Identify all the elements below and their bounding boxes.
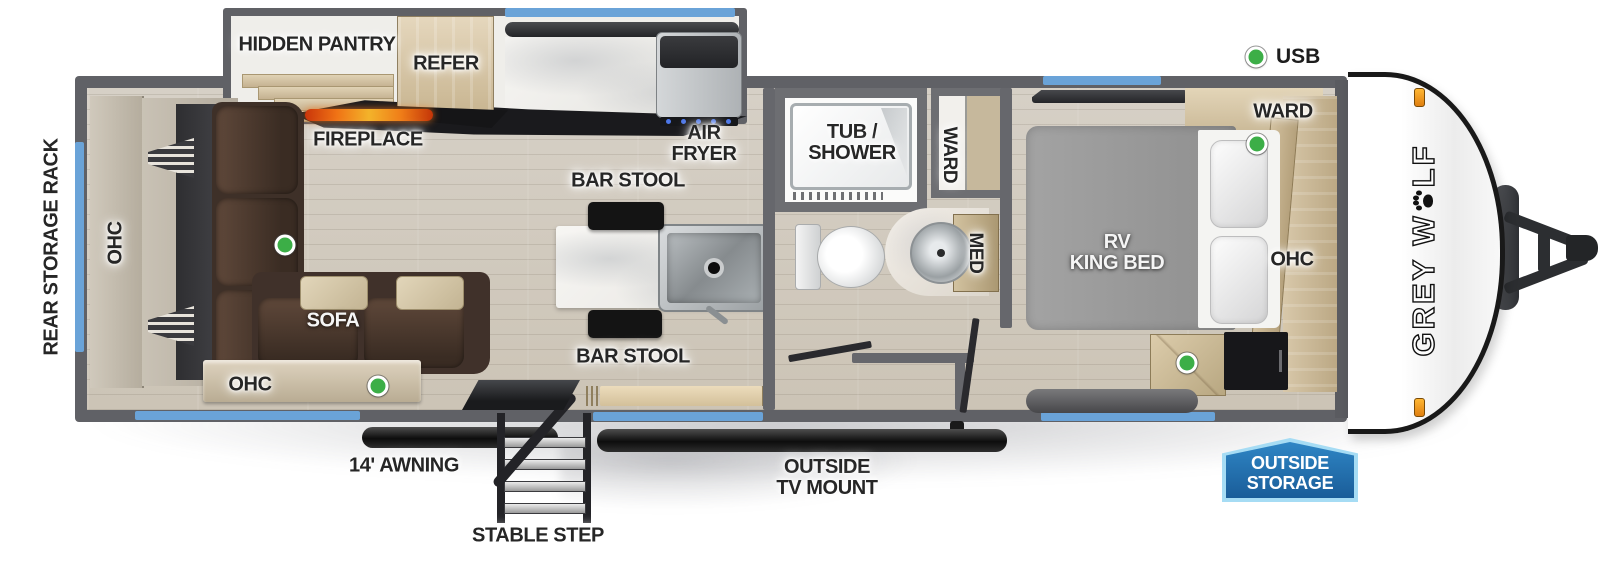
kitchen-sink <box>658 224 770 312</box>
bar-stool-top-label: BAR STOOL <box>571 171 685 192</box>
ohc-bottom-label: OHC <box>228 375 271 396</box>
refer-label: REFER <box>413 54 479 75</box>
air-fryer-label: AIRFRYER <box>671 123 736 165</box>
marker-light-bottom <box>1414 398 1425 417</box>
step-tread <box>504 437 586 448</box>
kitchen-bottom-window <box>593 412 763 421</box>
paw-icon <box>1413 190 1435 210</box>
bar-stool-bottom <box>588 310 662 338</box>
sofa-pillow <box>396 276 464 310</box>
brand-text-2: LF <box>1406 143 1442 187</box>
bath-ward-label: WARD <box>939 127 959 183</box>
awning-label: 14' AWNING <box>349 456 459 477</box>
bedroom-top-window <box>1043 76 1161 85</box>
usb-dot-nightstand <box>1177 353 1198 374</box>
bathroom-sink <box>910 222 972 284</box>
brand-text-1: GREY W <box>1406 213 1442 356</box>
bar-stool-bottom-label: BAR STOOL <box>576 347 690 368</box>
usb-legend-dot <box>1246 47 1267 68</box>
bathroom-right-wall <box>1000 88 1012 328</box>
slideout-window <box>505 8 735 17</box>
step-tread <box>504 481 586 492</box>
usb-dot-ward <box>1247 134 1268 155</box>
entry-step <box>462 380 580 410</box>
marker-light-top <box>1414 88 1425 107</box>
stable-step-label: STABLE STEP <box>472 526 604 547</box>
hidden-pantry-label: HIDDEN PANTRY <box>238 35 395 56</box>
brand-logo: GREY WLF <box>1406 143 1442 356</box>
toilet <box>817 226 885 288</box>
bedroom-bottom-window <box>1041 412 1215 421</box>
bathroom-left-wall <box>763 88 775 410</box>
usb-legend-label: USB <box>1276 45 1320 69</box>
air-fryer-appliance <box>656 32 742 118</box>
usb-dot-ohc <box>368 376 389 397</box>
hitch-coupler <box>1566 235 1598 261</box>
sofa-pillow <box>300 276 368 310</box>
tub-shower-label: TUB /SHOWER <box>808 122 896 164</box>
bed-pillow <box>1210 236 1268 324</box>
fireplace-flame <box>305 109 433 121</box>
living-bottom-window <box>135 411 360 420</box>
outside-tv-mount-label: OUTSIDETV MOUNT <box>776 457 877 499</box>
rear-storage-rack-label: REAR STORAGE RACK <box>42 138 63 355</box>
bed-bench <box>1026 389 1198 413</box>
storage-badge-line1: OUTSIDE <box>1251 454 1329 474</box>
usb-dot-living <box>275 235 296 256</box>
rv-king-bed-label: RVKING BED <box>1070 232 1165 274</box>
rear-window <box>75 142 84 352</box>
bedroom-black-cabinet <box>1224 332 1288 390</box>
bedroom-ward-label: WARD <box>1253 102 1313 123</box>
awning-tube-right <box>597 429 1007 452</box>
floorplan-canvas: GREY WLF OUTSIDE STORAGE USB REAR STORAG… <box>0 0 1600 569</box>
storage-badge-line2: STORAGE <box>1247 474 1334 494</box>
sofa-label: SOFA <box>307 311 360 332</box>
med-label: MED <box>965 232 985 273</box>
hitch-crossbar <box>1538 232 1550 272</box>
ohc-rear-label: OHC <box>106 221 127 264</box>
bedroom-ohc-label: OHC <box>1270 250 1313 271</box>
fireplace-label: FIREPLACE <box>313 130 423 151</box>
entry-mat <box>600 386 762 406</box>
bedroom-tv <box>1032 90 1187 103</box>
step-tread <box>504 503 586 514</box>
bar-stool-top <box>588 202 664 230</box>
